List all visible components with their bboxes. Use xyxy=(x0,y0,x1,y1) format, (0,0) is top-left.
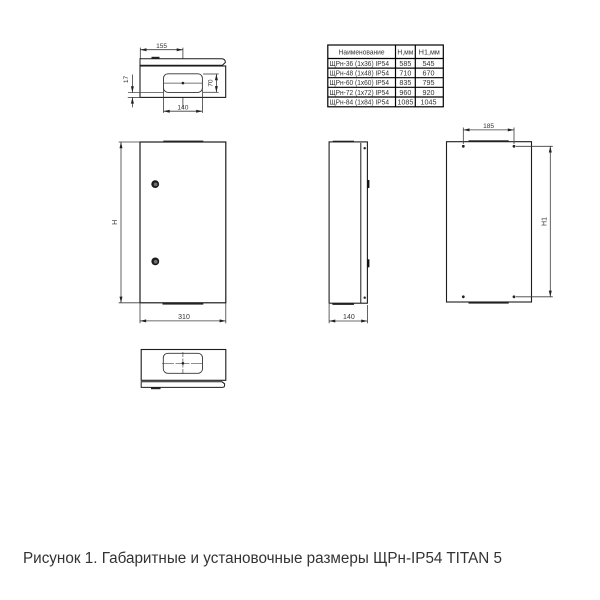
svg-text:Наименование: Наименование xyxy=(339,48,385,57)
svg-text:585: 585 xyxy=(399,59,411,68)
svg-text:545: 545 xyxy=(423,59,435,68)
svg-text:140: 140 xyxy=(343,314,355,321)
svg-text:Н1,мм: Н1,мм xyxy=(419,48,440,57)
svg-text:Рисунок 1. Габаритные и устано: Рисунок 1. Габаритные и установочные раз… xyxy=(23,550,502,567)
svg-text:ЩРн-48 (1х48) IP54: ЩРн-48 (1х48) IP54 xyxy=(330,69,390,78)
svg-text:ЩРн-60 (1х60) IP54: ЩРн-60 (1х60) IP54 xyxy=(330,78,390,87)
svg-text:710: 710 xyxy=(399,69,411,78)
svg-text:140: 140 xyxy=(177,104,188,111)
svg-text:H: H xyxy=(112,220,119,225)
svg-text:310: 310 xyxy=(178,314,190,321)
svg-text:ЩРн-84 (1х84) IP54: ЩРн-84 (1х84) IP54 xyxy=(330,98,390,107)
svg-text:835: 835 xyxy=(399,78,411,87)
svg-text:920: 920 xyxy=(423,88,435,97)
svg-text:960: 960 xyxy=(399,88,411,97)
svg-text:H1: H1 xyxy=(541,217,548,226)
svg-text:1045: 1045 xyxy=(421,98,437,107)
svg-text:Н,мм: Н,мм xyxy=(397,48,413,57)
svg-text:ЩРн-72 (1х72) IP54: ЩРн-72 (1х72) IP54 xyxy=(330,88,390,97)
svg-text:155: 155 xyxy=(156,43,167,50)
svg-text:1085: 1085 xyxy=(397,98,413,107)
svg-text:795: 795 xyxy=(423,78,435,87)
svg-text:70: 70 xyxy=(208,79,215,87)
svg-text:670: 670 xyxy=(423,69,435,78)
svg-text:17: 17 xyxy=(123,76,130,84)
svg-text:ЩРн-36 (1х36) IP54: ЩРн-36 (1х36) IP54 xyxy=(330,59,390,68)
svg-text:185: 185 xyxy=(483,123,494,130)
